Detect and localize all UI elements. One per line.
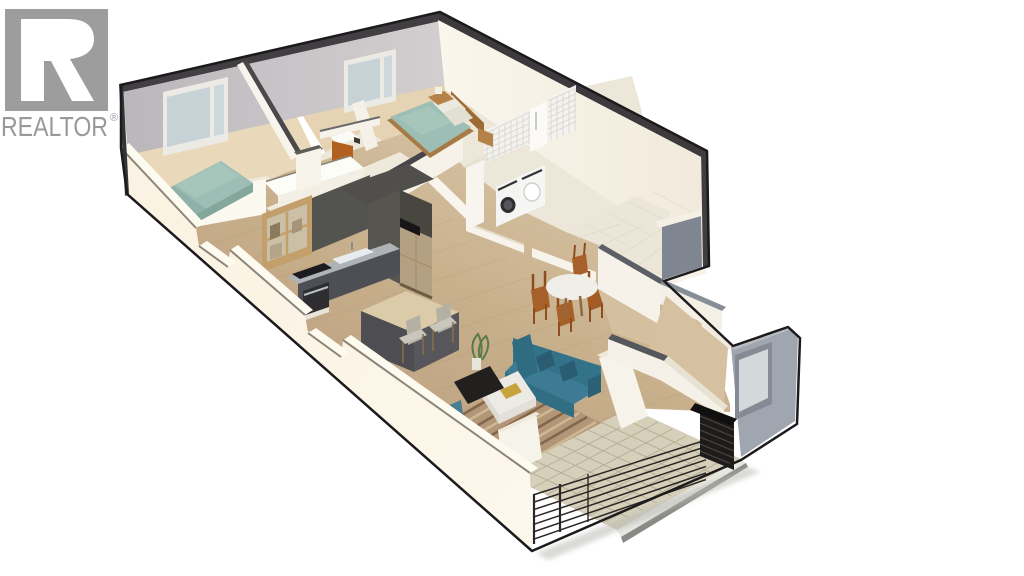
svg-text:®: ® — [110, 112, 118, 124]
svg-text:REALTOR: REALTOR — [1, 111, 108, 142]
